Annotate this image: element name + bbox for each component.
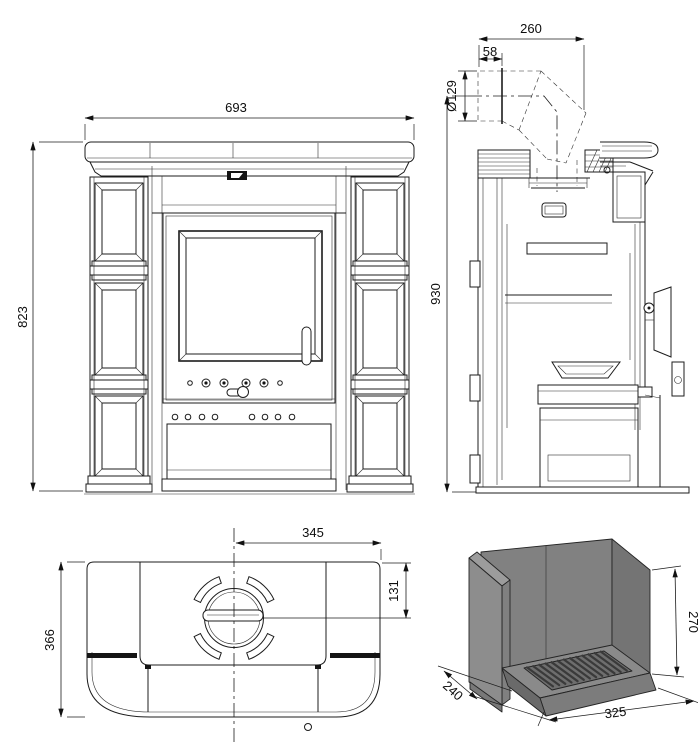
damper-handle [203,610,263,621]
front-door [163,213,335,403]
dim-front-height: 823 [15,306,30,328]
dim-flue-collar: 58 [483,44,497,59]
top-plate-nose [600,142,658,158]
door-handle [302,327,311,365]
dim-top-depth: 366 [42,629,57,651]
front-cornice [85,142,414,176]
dim-top-flueback: 131 [386,580,401,602]
air-control-lever [227,171,247,180]
dim-flue-offset: 260 [520,21,542,36]
ash-pan-knob [638,387,652,397]
drawing-page: 693 823 260 58 Ø129 [0,0,698,746]
dim-front-width: 693 [225,100,247,115]
technical-drawing: 693 823 260 58 Ø129 [0,0,698,746]
dim-side-height: 930 [428,283,443,305]
dim-top-halfwidth: 345 [302,525,324,540]
dim-firebox-width: 325 [604,704,627,722]
front-right-column [347,177,413,492]
front-left-column [86,177,152,492]
door-window [179,231,322,361]
dim-firebox-height: 270 [686,611,698,633]
